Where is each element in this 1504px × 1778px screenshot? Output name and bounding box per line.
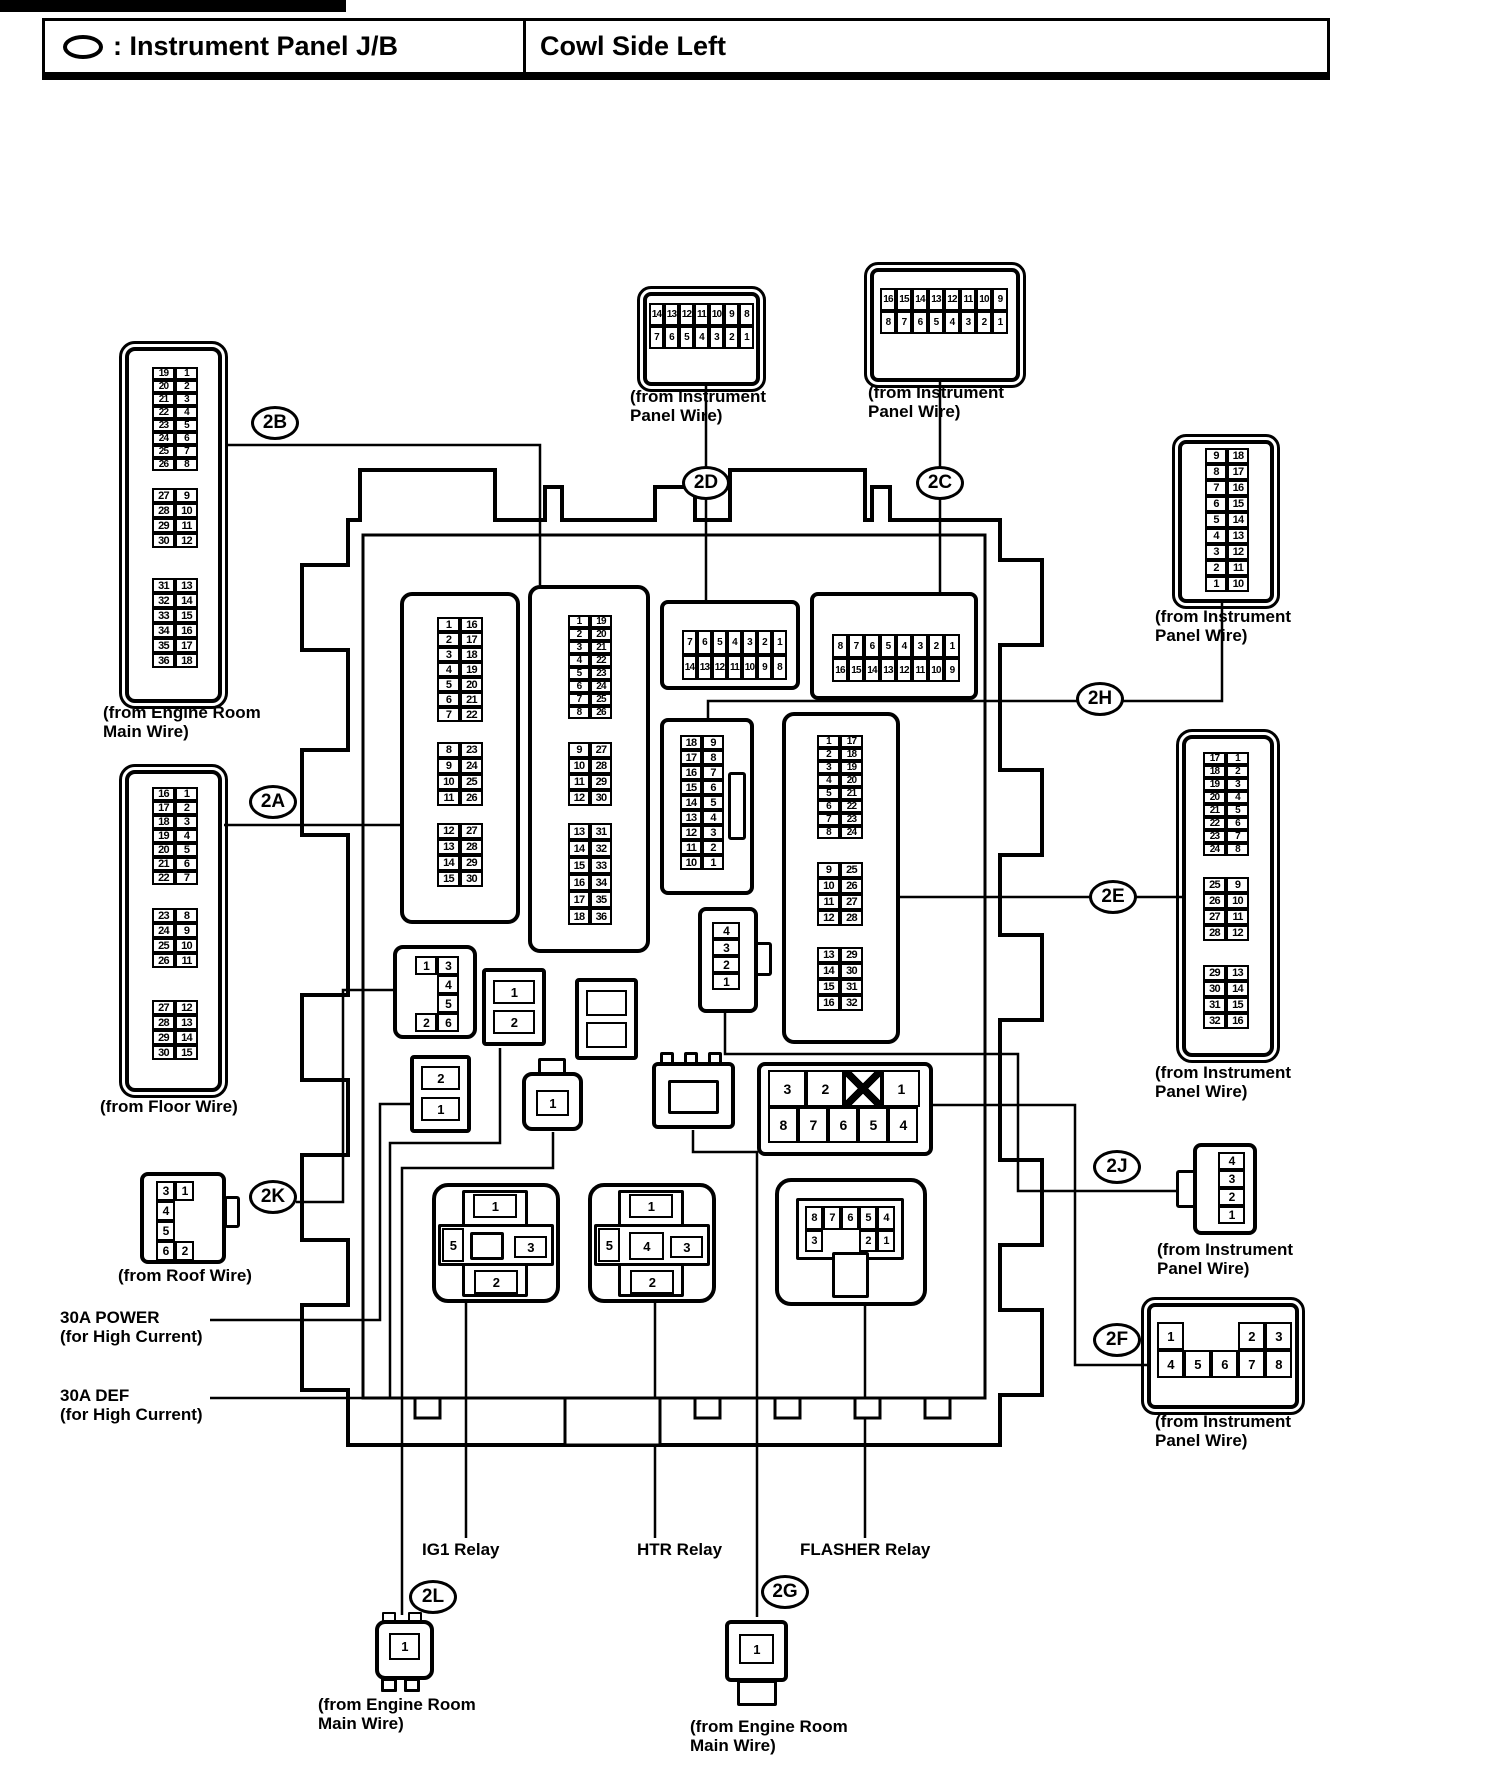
connector-2c-ext-pins-cell: 11 bbox=[960, 288, 976, 311]
connector-2c-int-pins: 87654321161514131211109 bbox=[832, 634, 960, 682]
connector-2e-int-section3-cell: 31 bbox=[840, 979, 863, 995]
htr-relay-pin-1: 1 bbox=[629, 1194, 673, 1218]
connector-2a-int-section2-cell: 25 bbox=[460, 774, 483, 790]
connector-2b-int-section3-cell: 17 bbox=[568, 891, 590, 908]
connector-2c-int-pins-cell: 11 bbox=[912, 658, 928, 682]
connector-2a-ext-section3-cell: 30 bbox=[152, 1045, 175, 1060]
connector-2j-int-pins-cell: 3 bbox=[712, 939, 740, 956]
connector-2c-ext-pins-cell: 10 bbox=[976, 288, 992, 311]
connector-2f-ext-row1-cell: 3 bbox=[1265, 1322, 1292, 1350]
label-2b-ext-source: (from Engine Room Main Wire) bbox=[103, 703, 261, 741]
connector-2j-ext-pins-cell: 3 bbox=[1218, 1170, 1245, 1188]
connector-2e-int-section1-cell: 4 bbox=[817, 774, 840, 787]
callout-2g: 2G bbox=[761, 1575, 809, 1609]
connector-2a-int-section1-cell: 7 bbox=[437, 707, 460, 722]
connector-2j-int-pins: 4321 bbox=[712, 922, 740, 990]
connector-2b-ext-section3-cell: 16 bbox=[175, 623, 198, 638]
block-bottom-tick-2 bbox=[695, 1398, 720, 1418]
connector-2c-ext-pins-cell: 5 bbox=[928, 311, 944, 334]
flasher-relay-row1-cell: 5 bbox=[859, 1206, 877, 1230]
connector-2h-ext-pins-cell: 6 bbox=[1205, 496, 1227, 512]
connector-2a-ext-section2-cell: 8 bbox=[175, 908, 198, 923]
connector-2h-ext-pins-cell: 3 bbox=[1205, 544, 1227, 560]
connector-2b-ext-section3-cell: 36 bbox=[152, 653, 175, 668]
connector-2a-int-section1-cell: 20 bbox=[460, 677, 483, 692]
label-2l-ext-source: (from Engine Room Main Wire) bbox=[318, 1695, 476, 1733]
connector-2e-ext-section2-cell: 28 bbox=[1203, 925, 1226, 941]
connector-2e-int-section1-cell: 2 bbox=[817, 748, 840, 761]
connector-2a-ext-section2-cell: 23 bbox=[152, 908, 175, 923]
connector-2e-int-section1-cell: 20 bbox=[840, 774, 863, 787]
connector-2h-int-pins-cell: 1 bbox=[702, 855, 724, 870]
ig1-relay-pin-1: 1 bbox=[473, 1194, 517, 1218]
connector-2b-ext-section2-cell: 10 bbox=[175, 503, 198, 518]
connector-2e-int-section1-cell: 8 bbox=[817, 826, 840, 839]
flasher-relay-row1: 87654 bbox=[805, 1206, 895, 1230]
connector-2d-ext-pins: 1413121110987654321 bbox=[649, 303, 754, 349]
connector-2b-ext-section3-cell: 18 bbox=[175, 653, 198, 668]
connector-2h-ext-pins-cell: 10 bbox=[1227, 576, 1249, 592]
connector-2a-ext-section1-cell: 20 bbox=[152, 843, 175, 857]
connector-2a-int-section2-cell: 8 bbox=[437, 742, 460, 758]
connector-2f-int-row2-cell: 6 bbox=[828, 1107, 858, 1143]
htr-relay-pin-1-cell: 1 bbox=[629, 1194, 673, 1218]
connector-2e-int-section1-cell: 24 bbox=[840, 826, 863, 839]
connector-2b-int-section3: 133114321533163417351836 bbox=[568, 823, 612, 925]
connector-2a-ext-section1: 161172183194205216227 bbox=[152, 787, 198, 885]
label-2a-ext-source: (from Floor Wire) bbox=[100, 1097, 238, 1116]
connector-2h-ext-pins-cell: 15 bbox=[1227, 496, 1249, 512]
connector-2k-ext-pins: 314562 bbox=[156, 1181, 194, 1261]
connector-2h-int-pins-cell: 6 bbox=[702, 780, 724, 795]
flasher-relay-stem bbox=[832, 1252, 869, 1298]
connector-2b-ext-section3-cell: 15 bbox=[175, 608, 198, 623]
connector-2b-int-section1-cell: 20 bbox=[590, 628, 612, 641]
connector-2e-ext-section2: 259261027112812 bbox=[1203, 877, 1249, 941]
connector-2a-int-section3-cell: 30 bbox=[460, 871, 483, 887]
htr-relay-pin-3-cell: 3 bbox=[670, 1236, 703, 1258]
connector-2d-int-pins-cell: 2 bbox=[757, 630, 772, 655]
connector-2a-int-section1-cell: 1 bbox=[437, 617, 460, 632]
connector-2b-int-section1-cell: 22 bbox=[590, 654, 612, 667]
callout-2a: 2A bbox=[249, 785, 297, 819]
connector-2f-int-row1-cell: 1 bbox=[882, 1070, 920, 1107]
connector-2h-int-latch bbox=[728, 772, 746, 840]
connector-2e-ext-section1-cell: 5 bbox=[1226, 804, 1249, 817]
connector-2e-ext-section1-cell: 8 bbox=[1226, 843, 1249, 856]
label-ig1-relay: IG1 Relay bbox=[422, 1540, 500, 1559]
connector-2e-ext-section2-cell: 10 bbox=[1226, 893, 1249, 909]
connector-2a-ext-section1-cell: 17 bbox=[152, 801, 175, 815]
connector-2b-int-section3-cell: 14 bbox=[568, 840, 590, 857]
connector-2a-int-section3-cell: 14 bbox=[437, 855, 460, 871]
connector-2b-int-section2-cell: 9 bbox=[568, 742, 590, 758]
callout-2b: 2B bbox=[251, 406, 299, 440]
connector-2b-int-section2: 927102811291230 bbox=[568, 742, 612, 806]
connector-2b-int-section1: 119220321422523624725826 bbox=[568, 615, 612, 719]
connector-2b-int-section1-cell: 5 bbox=[568, 667, 590, 680]
connector-2d-ext-pins-cell: 9 bbox=[724, 303, 739, 326]
connector-2b-int-section3-cell: 13 bbox=[568, 823, 590, 840]
connector-2h-int-pins: 189178167156145134123112101 bbox=[680, 735, 724, 870]
connector-2f-int-row2-cell: 5 bbox=[858, 1107, 888, 1143]
connector-2a-int-section3-cell: 27 bbox=[460, 823, 483, 839]
connector-2d-int-pins-cell: 6 bbox=[697, 630, 712, 655]
connector-2e-int-section3-cell: 32 bbox=[840, 995, 863, 1011]
connector-2k-ext-pins-cell: 1 bbox=[175, 1181, 194, 1201]
connector-2h-int-pins-cell: 4 bbox=[702, 810, 724, 825]
connector-2k-int-pins-cell: 1 bbox=[415, 956, 437, 975]
connector-2e-ext-section1-cell: 18 bbox=[1203, 765, 1226, 778]
connector-2b-ext-section1: 191202213224235246257268 bbox=[152, 367, 198, 471]
ig1-relay-pin-3-cell: 3 bbox=[514, 1236, 547, 1258]
connector-2e-int-section1-cell: 3 bbox=[817, 761, 840, 774]
connector-2b-int-section3-cell: 15 bbox=[568, 857, 590, 874]
connector-2e-int-section1-cell: 21 bbox=[840, 787, 863, 800]
connector-2a-ext-section1-cell: 18 bbox=[152, 815, 175, 829]
connector-2c-ext-pins: 16151413121110987654321 bbox=[880, 288, 1008, 334]
connector-2e-int-section3-cell: 29 bbox=[840, 947, 863, 963]
connector-2b-ext-section2-cell: 12 bbox=[175, 533, 198, 548]
connector-2d-ext-pins-cell: 14 bbox=[649, 303, 664, 326]
block-bottom-tick-1 bbox=[415, 1398, 440, 1418]
connector-2c-ext-pins-cell: 13 bbox=[928, 288, 944, 311]
connector-2b-ext-section1-cell: 21 bbox=[152, 393, 175, 406]
callout-2e: 2E bbox=[1089, 880, 1137, 914]
connector-2c-int-pins-cell: 9 bbox=[944, 658, 960, 682]
htr-relay-pin-2-cell: 2 bbox=[630, 1270, 674, 1294]
connector-2d-ext-pins-cell: 10 bbox=[709, 303, 724, 326]
connector-2b-int-section1-cell: 2 bbox=[568, 628, 590, 641]
connector-2c-ext-pins-cell: 14 bbox=[912, 288, 928, 311]
connector-2a-ext-section1-cell: 4 bbox=[175, 829, 198, 843]
ig1-relay-pin-2: 2 bbox=[474, 1270, 518, 1294]
connector-2a-int-section1-cell: 19 bbox=[460, 662, 483, 677]
connector-2b-ext-section3: 311332143315341635173618 bbox=[152, 578, 198, 668]
connector-2b-ext-section1-cell: 24 bbox=[152, 432, 175, 445]
connector-2b-ext-section3-cell: 17 bbox=[175, 638, 198, 653]
connector-2b-ext-section3-cell: 13 bbox=[175, 578, 198, 593]
connector-2a-ext-section1-cell: 6 bbox=[175, 857, 198, 871]
connector-2d-ext-pins-cell: 12 bbox=[679, 303, 694, 326]
connector-2a-int-section2-cell: 11 bbox=[437, 790, 460, 806]
connector-2b-int-section2-cell: 10 bbox=[568, 758, 590, 774]
connector-2a-ext-section2: 23824925102611 bbox=[152, 908, 198, 968]
page-header: : Instrument Panel J/B Cowl Side Left bbox=[42, 18, 1330, 80]
connector-2e-int-section2: 925102611271228 bbox=[817, 862, 863, 926]
callout-line-2k bbox=[296, 990, 393, 1202]
connector-2b-int-section2-cell: 29 bbox=[590, 774, 612, 790]
connector-2a-int-section1: 116217318419520621722 bbox=[437, 617, 483, 722]
connector-2b-ext-section1-cell: 22 bbox=[152, 406, 175, 419]
fuse-box-b-cells bbox=[586, 990, 627, 1048]
fuse-box-c-cells-cell: 2 bbox=[421, 1066, 460, 1090]
connector-2g-int-cavity bbox=[668, 1080, 719, 1114]
connector-2h-int-pins-cell: 10 bbox=[680, 855, 702, 870]
connector-2c-int-pins-cell: 4 bbox=[896, 634, 912, 658]
connector-2d-int-pins: 7654321141312111098 bbox=[682, 630, 787, 680]
connector-2b-ext-section2-cell: 28 bbox=[152, 503, 175, 518]
connector-2a-ext-section3: 2712281329143015 bbox=[152, 1000, 198, 1060]
connector-2a-int-section1-cell: 3 bbox=[437, 647, 460, 662]
label-2j-ext-source: (from Instrument Panel Wire) bbox=[1157, 1240, 1293, 1278]
connector-2e-int-section1-cell: 17 bbox=[840, 735, 863, 748]
connector-2a-ext-section1-cell: 22 bbox=[152, 871, 175, 885]
connector-2b-int-section3-cell: 31 bbox=[590, 823, 612, 840]
connector-2h-ext-pins-cell: 13 bbox=[1227, 528, 1249, 544]
connector-2d-int-pins-cell: 4 bbox=[727, 630, 742, 655]
connector-2l-int-pins-cell: 1 bbox=[536, 1090, 569, 1116]
connector-2a-ext-section1-cell: 3 bbox=[175, 815, 198, 829]
connector-2h-ext-pins-cell: 1 bbox=[1205, 576, 1227, 592]
connector-2b-ext-section2-cell: 30 bbox=[152, 533, 175, 548]
connector-2k-ext-pins-cell: 2 bbox=[175, 1241, 194, 1261]
htr-relay-pin-3: 3 bbox=[670, 1236, 703, 1258]
fuse-box-c-cells-cell: 1 bbox=[421, 1097, 460, 1121]
connector-2h-ext-pins: 918817716615514413312211110 bbox=[1205, 448, 1249, 592]
connector-2b-ext-section2-cell: 27 bbox=[152, 488, 175, 503]
connector-2b-ext-section1-cell: 19 bbox=[152, 367, 175, 380]
connector-2b-ext-section2-cell: 29 bbox=[152, 518, 175, 533]
connector-2a-ext-section3-cell: 13 bbox=[175, 1015, 198, 1030]
connector-2h-ext-pins-cell: 12 bbox=[1227, 544, 1249, 560]
header-location-label: Cowl Side Left bbox=[540, 31, 726, 62]
connector-2a-int-section2-cell: 23 bbox=[460, 742, 483, 758]
connector-2f-int-row1-cell: 3 bbox=[768, 1070, 806, 1107]
connector-2a-int-section2-cell: 10 bbox=[437, 774, 460, 790]
connector-2e-ext-section1-cell: 23 bbox=[1203, 830, 1226, 843]
connector-2k-ext-pins-cell: 5 bbox=[156, 1221, 175, 1241]
connector-2b-ext-section1-cell: 7 bbox=[175, 445, 198, 458]
connector-2j-int-pins-cell: 4 bbox=[712, 922, 740, 939]
connector-2f-ext-row2-cell: 5 bbox=[1184, 1350, 1211, 1378]
connector-2c-ext-pins-cell: 4 bbox=[944, 311, 960, 334]
connector-2j-ext-pins: 4321 bbox=[1218, 1152, 1245, 1224]
connector-2b-int-section2-cell: 28 bbox=[590, 758, 612, 774]
connector-2e-int-section1-cell: 1 bbox=[817, 735, 840, 748]
connector-2h-ext-pins-cell: 2 bbox=[1205, 560, 1227, 576]
htr-relay-pin-5: 5 bbox=[598, 1228, 620, 1262]
connector-2b-int-section3-cell: 35 bbox=[590, 891, 612, 908]
connector-2b-ext-section2-cell: 11 bbox=[175, 518, 198, 533]
connector-2h-int-pins-cell: 14 bbox=[680, 795, 702, 810]
connector-2k-ext-pins-cell: 3 bbox=[156, 1181, 175, 1201]
label-2d-ext-source: (from Instrument Panel Wire) bbox=[630, 387, 766, 425]
connector-2e-ext-section3-cell: 16 bbox=[1226, 1013, 1249, 1029]
label-2k-ext-source: (from Roof Wire) bbox=[118, 1266, 252, 1285]
connector-2e-ext-section2-cell: 11 bbox=[1226, 909, 1249, 925]
label-flasher-relay: FLASHER Relay bbox=[800, 1540, 930, 1559]
connector-2e-ext-section1-cell: 17 bbox=[1203, 752, 1226, 765]
connector-2d-int-pins-cell: 11 bbox=[727, 655, 742, 680]
connector-2g-ext-tail bbox=[737, 1680, 777, 1706]
connector-2d-int-pins-cell: 8 bbox=[772, 655, 787, 680]
connector-2c-int-pins-cell: 3 bbox=[912, 634, 928, 658]
connector-2a-ext-section3-cell: 27 bbox=[152, 1000, 175, 1015]
htr-relay-pin-5-cell: 5 bbox=[598, 1228, 620, 1262]
connector-2e-int-section2-cell: 9 bbox=[817, 862, 840, 878]
connector-2a-ext-section3-cell: 28 bbox=[152, 1015, 175, 1030]
connector-2g-ext-pins: 1 bbox=[739, 1634, 774, 1664]
connector-2f-int-row2-cell: 8 bbox=[768, 1107, 798, 1143]
connector-2b-int-section1-cell: 7 bbox=[568, 693, 590, 706]
connector-2a-ext-section2-cell: 11 bbox=[175, 953, 198, 968]
connector-2c-ext-pins-cell: 9 bbox=[992, 288, 1008, 311]
ig1-relay-pin-3: 3 bbox=[514, 1236, 547, 1258]
connector-2b-ext-section3-cell: 31 bbox=[152, 578, 175, 593]
connector-2b-ext-section2: 279281029113012 bbox=[152, 488, 198, 548]
connector-2d-ext-pins-cell: 5 bbox=[679, 326, 694, 349]
connector-2a-ext-section2-cell: 9 bbox=[175, 923, 198, 938]
connector-2d-int-pins-cell: 7 bbox=[682, 630, 697, 655]
connector-2f-ext-row1-cell: 2 bbox=[1238, 1322, 1265, 1350]
connector-2e-ext-section3-cell: 31 bbox=[1203, 997, 1226, 1013]
connector-2d-ext-pins-cell: 6 bbox=[664, 326, 679, 349]
connector-2a-ext-section2-cell: 26 bbox=[152, 953, 175, 968]
connector-2e-ext-section1-cell: 4 bbox=[1226, 791, 1249, 804]
connector-2b-int-section3-cell: 32 bbox=[590, 840, 612, 857]
flasher-relay-row2-cell: 2 bbox=[859, 1230, 877, 1252]
ig1-relay-pin-5-cell: 5 bbox=[442, 1228, 464, 1262]
connector-2h-ext-pins-cell: 5 bbox=[1205, 512, 1227, 528]
connector-2e-ext-section1-cell: 21 bbox=[1203, 804, 1226, 817]
connector-2e-ext-section1-cell: 7 bbox=[1226, 830, 1249, 843]
connector-2a-ext-section1-cell: 5 bbox=[175, 843, 198, 857]
connector-2b-ext-section1-cell: 1 bbox=[175, 367, 198, 380]
connector-2c-int-pins-cell: 5 bbox=[880, 634, 896, 658]
connector-2d-int-pins-cell: 9 bbox=[757, 655, 772, 680]
connector-2j-int-pins-cell: 2 bbox=[712, 956, 740, 973]
connector-2e-int-section3: 1329143015311632 bbox=[817, 947, 863, 1011]
connector-2c-int-pins-cell: 15 bbox=[848, 658, 864, 682]
connector-2c-int-pins-cell: 16 bbox=[832, 658, 848, 682]
connector-2f-int-row2-cell: 4 bbox=[888, 1107, 918, 1143]
flasher-relay-row1-cell: 6 bbox=[841, 1206, 859, 1230]
connector-2h-ext-pins-cell: 11 bbox=[1227, 560, 1249, 576]
connector-2a-int-section1-cell: 2 bbox=[437, 632, 460, 647]
connector-2e-ext-section2-cell: 9 bbox=[1226, 877, 1249, 893]
connector-2e-int-section2-cell: 28 bbox=[840, 910, 863, 926]
connector-2h-int-pins-cell: 11 bbox=[680, 840, 702, 855]
ig1-relay-pin-5: 5 bbox=[442, 1228, 464, 1262]
label-htr-relay: HTR Relay bbox=[637, 1540, 722, 1559]
connector-2d-int-pins-cell: 12 bbox=[712, 655, 727, 680]
connector-2j-ext-pins-cell: 2 bbox=[1218, 1188, 1245, 1206]
ig1-relay-pin-2-cell: 2 bbox=[474, 1270, 518, 1294]
flasher-relay-row2-cell: 3 bbox=[805, 1230, 823, 1252]
connector-2a-int-section3-cell: 13 bbox=[437, 839, 460, 855]
header-symbol-label: : Instrument Panel J/B bbox=[113, 31, 398, 62]
connector-2e-int-section3-cell: 30 bbox=[840, 963, 863, 979]
connector-2a-ext-section3-cell: 15 bbox=[175, 1045, 198, 1060]
connector-2e-int-section1-cell: 18 bbox=[840, 748, 863, 761]
connector-2e-int-section2-cell: 27 bbox=[840, 894, 863, 910]
flasher-relay-row1-cell: 8 bbox=[805, 1206, 823, 1230]
junction-block-symbol-icon bbox=[63, 35, 103, 59]
fuse-box-b-cells-cell bbox=[586, 1022, 627, 1048]
connector-2l-ext-pins-cell: 1 bbox=[389, 1633, 420, 1660]
connector-2h-int-pins-cell: 17 bbox=[680, 750, 702, 765]
connector-2b-ext-section1-cell: 5 bbox=[175, 419, 198, 432]
connector-2e-ext-section3-cell: 30 bbox=[1203, 981, 1226, 997]
connector-2a-int-section3-cell: 29 bbox=[460, 855, 483, 871]
connector-2a-ext-section1-cell: 1 bbox=[175, 787, 198, 801]
connector-2b-int-section2-cell: 27 bbox=[590, 742, 612, 758]
connector-2a-int-section1-cell: 5 bbox=[437, 677, 460, 692]
connector-2a-ext-section1-cell: 21 bbox=[152, 857, 175, 871]
connector-2c-int-pins-cell: 2 bbox=[928, 634, 944, 658]
connector-2b-int-section1-cell: 21 bbox=[590, 641, 612, 654]
connector-2d-ext-pins-cell: 13 bbox=[664, 303, 679, 326]
connector-2b-ext-section3-cell: 33 bbox=[152, 608, 175, 623]
page-top-bar bbox=[0, 0, 346, 12]
connector-2f-int-row2: 87654 bbox=[768, 1107, 918, 1143]
flasher-relay-row2: 321 bbox=[805, 1230, 895, 1252]
connector-2k-int-pins-cell: 2 bbox=[415, 1013, 437, 1032]
connector-2e-int-section2-cell: 12 bbox=[817, 910, 840, 926]
connector-2h-int-pins-cell: 16 bbox=[680, 765, 702, 780]
connector-2j-ext-pins-cell: 4 bbox=[1218, 1152, 1245, 1170]
connector-2j-ext-pins-cell: 1 bbox=[1218, 1206, 1245, 1224]
ig1-relay-center-cavity bbox=[470, 1232, 504, 1260]
connector-2b-int-section1-cell: 26 bbox=[590, 706, 612, 719]
connector-2h-int-pins-cell: 3 bbox=[702, 825, 724, 840]
fuse-box-a-cells: 12 bbox=[493, 980, 535, 1034]
connector-2b-int-section1-cell: 25 bbox=[590, 693, 612, 706]
connector-2a-ext-section3-cell: 12 bbox=[175, 1000, 198, 1015]
connector-2e-ext-section2-cell: 12 bbox=[1226, 925, 1249, 941]
connector-2c-int-pins-cell: 13 bbox=[880, 658, 896, 682]
connector-2a-ext-section3-cell: 29 bbox=[152, 1030, 175, 1045]
connector-2e-ext-section3-cell: 14 bbox=[1226, 981, 1249, 997]
connector-2h-ext-pins-cell: 14 bbox=[1227, 512, 1249, 528]
htr-relay-pin-2: 2 bbox=[630, 1270, 674, 1294]
connector-2e-ext-section2-cell: 25 bbox=[1203, 877, 1226, 893]
htr-relay-pin-4-cell: 4 bbox=[629, 1232, 664, 1260]
header-symbol-cell: : Instrument Panel J/B bbox=[45, 21, 526, 72]
connector-2a-int-section1-cell: 16 bbox=[460, 617, 483, 632]
connector-2b-ext-section1-cell: 4 bbox=[175, 406, 198, 419]
connector-2e-int-section3-cell: 15 bbox=[817, 979, 840, 995]
connector-2e-ext-section2-cell: 26 bbox=[1203, 893, 1226, 909]
block-bottom-tick-4 bbox=[855, 1398, 880, 1418]
connector-2b-ext-section3-cell: 34 bbox=[152, 623, 175, 638]
connector-2h-int-pins-cell: 13 bbox=[680, 810, 702, 825]
connector-2e-ext-section3-cell: 15 bbox=[1226, 997, 1249, 1013]
connector-2a-int-section3-cell: 15 bbox=[437, 871, 460, 887]
connector-2d-int-pins-cell: 13 bbox=[697, 655, 712, 680]
connector-2h-int-pins-cell: 7 bbox=[702, 765, 724, 780]
connector-2b-int-section3-cell: 36 bbox=[590, 908, 612, 925]
connector-2c-ext-pins-cell: 3 bbox=[960, 311, 976, 334]
connector-2k-ext-pins-cell: 6 bbox=[156, 1241, 175, 1261]
connector-2b-int-section1-cell: 23 bbox=[590, 667, 612, 680]
connector-2b-ext-section1-cell: 23 bbox=[152, 419, 175, 432]
connector-2e-ext-section1-cell: 19 bbox=[1203, 778, 1226, 791]
connector-2k-int-pins-cell: 4 bbox=[437, 975, 459, 994]
connector-2c-int-pins-cell: 10 bbox=[928, 658, 944, 682]
connector-2e-int-section2-cell: 26 bbox=[840, 878, 863, 894]
label-30a-power: 30A POWER (for High Current) bbox=[60, 1308, 203, 1346]
connector-2h-int-pins-cell: 9 bbox=[702, 735, 724, 750]
connector-2k-int-pins-cell: 3 bbox=[437, 956, 459, 975]
connector-2d-int-pins-cell: 5 bbox=[712, 630, 727, 655]
connector-2a-int-section1-cell: 22 bbox=[460, 707, 483, 722]
label-2h-ext-source: (from Instrument Panel Wire) bbox=[1155, 607, 1291, 645]
connector-2f-ext-row2-cell: 6 bbox=[1211, 1350, 1238, 1378]
connector-2b-ext-section1-cell: 20 bbox=[152, 380, 175, 393]
connector-2b-int-section1-cell: 4 bbox=[568, 654, 590, 667]
